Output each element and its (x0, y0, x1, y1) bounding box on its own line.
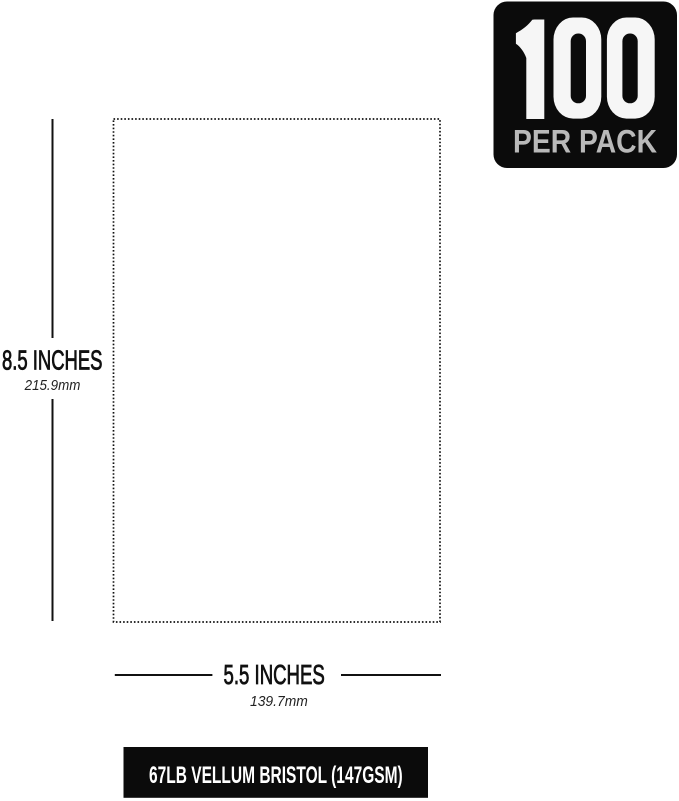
svg-text:5.5 INCHES: 5.5 INCHES (224, 659, 325, 690)
svg-text:215.9mm: 215.9mm (24, 378, 81, 394)
svg-text:PER PACK: PER PACK (513, 124, 657, 160)
svg-text:67LB VELLUM BRISTOL (147GSM): 67LB VELLUM BRISTOL (147GSM) (149, 762, 403, 789)
svg-text:8.5 INCHES: 8.5 INCHES (2, 345, 103, 376)
svg-text:139.7mm: 139.7mm (250, 694, 308, 710)
